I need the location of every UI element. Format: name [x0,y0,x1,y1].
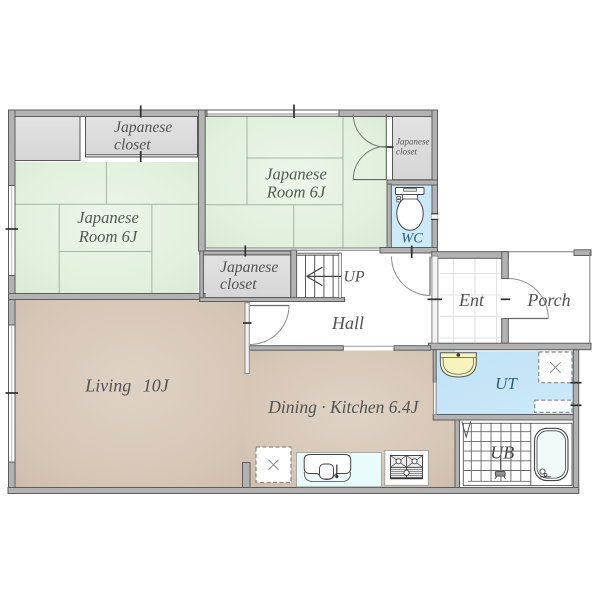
svg-text:UB: UB [490,442,514,462]
svg-text:UT: UT [495,374,518,393]
svg-text:Dining · Kitchen 6.4J: Dining · Kitchen 6.4J [267,397,419,417]
svg-text:Ent: Ent [458,290,485,310]
svg-text:10J: 10J [143,375,170,395]
svg-text:Japanese: Japanese [220,259,278,276]
svg-text:Japanese: Japanese [265,164,327,183]
svg-text:Room 6J: Room 6J [266,182,327,201]
svg-text:Japanese: Japanese [396,136,430,146]
svg-text:Japanese: Japanese [77,208,139,227]
svg-text:Hall: Hall [331,313,364,333]
svg-text:closet: closet [114,137,151,154]
svg-text:Japanese: Japanese [114,119,172,136]
svg-text:Porch: Porch [526,290,570,310]
svg-text:Living: Living [84,375,131,395]
svg-text:Room 6J: Room 6J [78,227,139,246]
svg-text:closet: closet [220,276,257,293]
svg-text:closet: closet [396,146,417,156]
svg-text:UP: UP [343,269,365,286]
svg-text:WC: WC [401,231,423,247]
